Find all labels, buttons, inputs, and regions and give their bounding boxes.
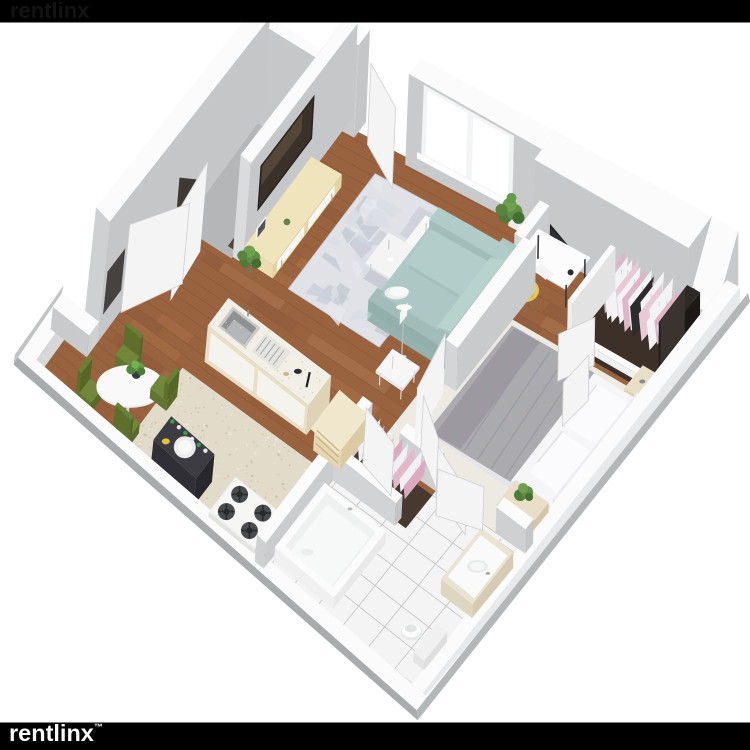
svg-text:rentlinx™: rentlinx™ bbox=[9, 720, 103, 746]
svg-text:rentlinx: rentlinx bbox=[10, 0, 90, 23]
